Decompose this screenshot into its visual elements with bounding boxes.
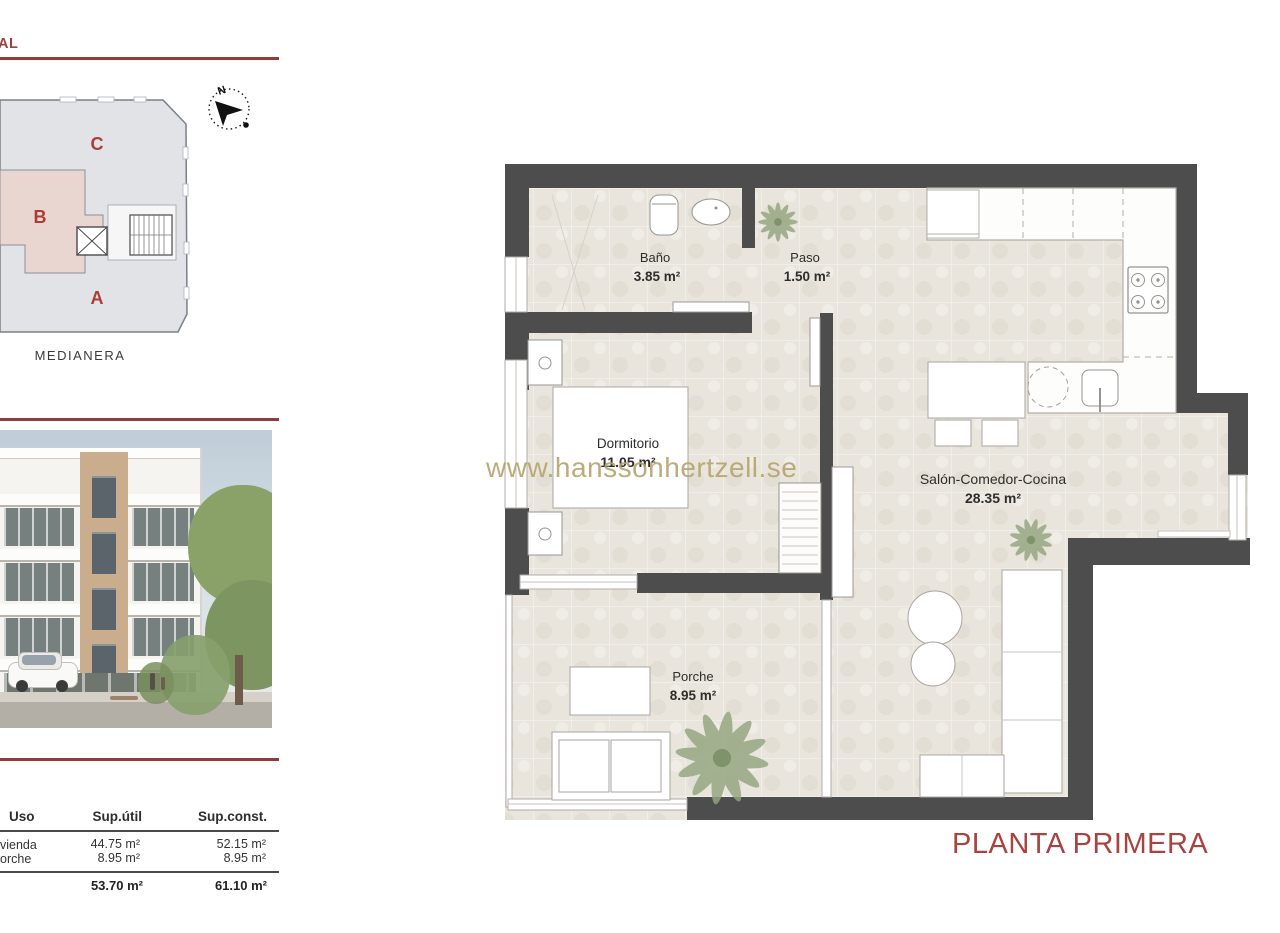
table-total-rule [0,871,279,873]
row-uso-label: orche [0,852,31,866]
site-label-c: C [91,134,104,154]
compass-dot [243,122,249,128]
compass-needle [215,101,243,126]
render-balcony-glass [4,618,74,656]
col-header-sup-util: Sup.útil [60,809,142,824]
car-window [22,655,56,665]
divider-line-top [0,57,279,60]
small-tree [138,662,174,704]
render-road [0,702,272,728]
floorplan-sheet: { "header": { "clipped_title": "RAL" }, … [0,0,1280,933]
row-uso-label: vienda [0,838,37,852]
nightstand [528,340,562,385]
room-label-paso-area: 1.50 m² [784,269,831,284]
room-label-paso-name: Paso [790,250,820,265]
compass-north-label: N [216,84,227,98]
site-elevator [77,227,107,255]
plan-title: PLANTA PRIMERA [952,828,1208,861]
room-label-dormitorio-name: Dormitorio [597,436,659,451]
fridge [927,190,979,238]
round-table [911,642,955,686]
medianera-label: MEDIANERA [35,348,126,363]
room-label-porche-area: 8.95 m² [670,688,717,703]
site-label-b: B [34,207,47,227]
room-label-porche-name: Porche [672,669,713,684]
row-sup-const: 52.15 m² [184,837,266,851]
render-tan-column [80,452,128,700]
washbasin [692,199,730,225]
site-stairs [130,215,172,255]
divider-line-middle [0,418,279,421]
total-sup-util: 53.70 m² [56,878,143,893]
wardrobe [779,483,821,573]
site-label-a: A [91,288,104,308]
round-table [908,591,962,645]
kitchen-sink [1082,370,1118,412]
floor-plan-drawing: Baño 3.85 m² Paso 1.50 m² Dormitorio 11.… [495,150,1255,835]
table-header-rule [0,830,279,832]
street-bench [110,696,138,700]
room-label-salon-name: Salón-Comedor-Cocina [920,471,1067,487]
row-sup-util: 44.75 m² [58,837,140,851]
tree-trunk [235,655,243,705]
render-stair-window [92,588,116,630]
clipped-page-heading: RAL [0,36,18,52]
watermark-url: www.hanssonhertzell.se [486,452,797,484]
row-sup-const: 8.95 m² [184,851,266,865]
stove [1128,267,1168,313]
col-header-uso: Uso [9,809,35,824]
room-label-bano-area: 3.85 m² [634,269,681,284]
site-key-plan: C B A MEDIANERA [0,92,200,382]
row-sup-util: 8.95 m² [58,851,140,865]
render-balcony-glass [4,563,74,601]
nightstand [528,512,562,555]
building-render-photo [0,430,272,728]
person-figure [150,673,155,690]
divider-line-bottom [0,758,279,761]
car-wheel [16,680,28,692]
render-stair-window [92,532,116,574]
render-balcony-glass [4,508,74,546]
render-stair-window [92,476,116,518]
room-label-salon-area: 28.35 m² [965,490,1021,506]
person-figure [161,677,165,690]
porch-table [570,667,650,715]
compass-icon: N [202,80,258,136]
total-sup-const: 61.10 m² [182,878,267,893]
col-header-sup-const: Sup.const. [185,809,267,824]
porch-bench [552,732,670,800]
toilet [650,195,678,235]
render-balcony-glass [132,508,194,546]
render-balcony-glass [132,563,194,601]
car-wheel [56,680,68,692]
room-label-bano-name: Baño [640,250,670,265]
